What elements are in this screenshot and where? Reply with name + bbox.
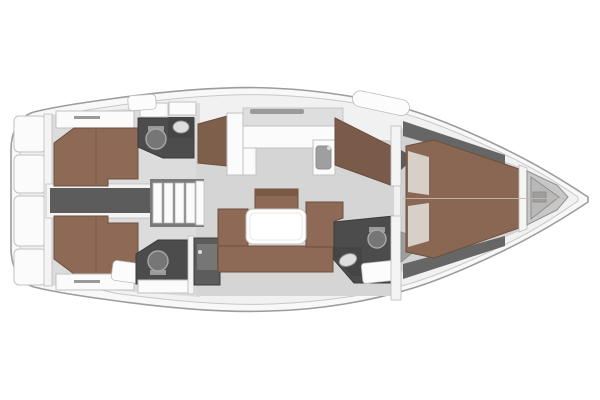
sink xyxy=(173,121,189,133)
settee-bottom-bench xyxy=(218,246,333,272)
transom-step xyxy=(14,196,46,246)
skylight-slot xyxy=(250,109,304,114)
cabinet xyxy=(169,102,196,115)
toilet xyxy=(146,129,166,149)
pillow xyxy=(408,151,429,195)
companionway-step xyxy=(164,183,173,223)
transom-step xyxy=(14,155,46,193)
shower-panel xyxy=(197,244,217,270)
floor-plan-canvas xyxy=(0,0,600,400)
faucet xyxy=(327,146,331,150)
salon-table xyxy=(246,209,306,244)
galley-return xyxy=(243,148,256,175)
yacht-floor-plan xyxy=(0,0,600,400)
fridge-column xyxy=(227,113,243,175)
settee-island-backrest xyxy=(255,189,298,196)
toilet xyxy=(148,251,168,271)
bulkhead-lower xyxy=(391,216,401,300)
toilet xyxy=(368,230,386,248)
companionway-step xyxy=(153,183,162,223)
shower-knob xyxy=(198,250,202,254)
transom-step xyxy=(14,116,46,152)
vent-slot xyxy=(74,280,100,283)
pillow xyxy=(408,203,429,247)
head-step xyxy=(138,280,188,293)
companionway-step xyxy=(175,183,184,223)
transom-step xyxy=(14,249,46,285)
companionway-landing xyxy=(196,181,204,225)
vent-slot xyxy=(74,116,100,119)
head-divider xyxy=(188,236,194,294)
shower-seat xyxy=(361,260,395,283)
engine-corridor xyxy=(50,188,152,213)
bulkhead-upper xyxy=(391,126,401,186)
companionway-step xyxy=(186,183,195,223)
deck-hatch xyxy=(128,94,157,111)
windlass xyxy=(533,192,546,202)
side-shelf xyxy=(56,111,134,128)
wardrobe xyxy=(198,116,227,166)
